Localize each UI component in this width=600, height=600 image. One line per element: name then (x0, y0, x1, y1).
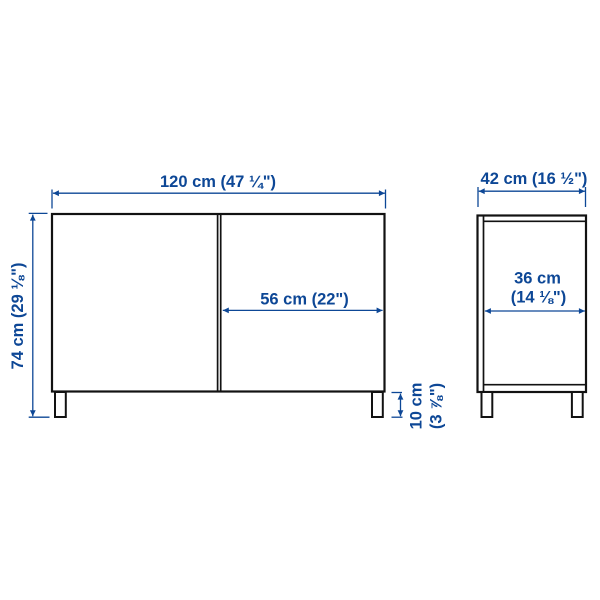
svg-text:(14 ⅛"): (14 ⅛") (511, 289, 567, 307)
svg-text:36 cm: 36 cm (514, 270, 561, 288)
svg-text:120 cm (47 ¼"): 120 cm (47 ¼") (160, 173, 276, 191)
svg-text:10 cm: 10 cm (408, 383, 426, 430)
svg-text:42 cm (16 ½"): 42 cm (16 ½") (481, 170, 588, 188)
svg-text:56 cm (22"): 56 cm (22") (260, 291, 349, 309)
svg-text:(3 ⅞"): (3 ⅞") (428, 383, 446, 429)
svg-text:74 cm (29 ⅛"): 74 cm (29 ⅛") (9, 263, 27, 370)
